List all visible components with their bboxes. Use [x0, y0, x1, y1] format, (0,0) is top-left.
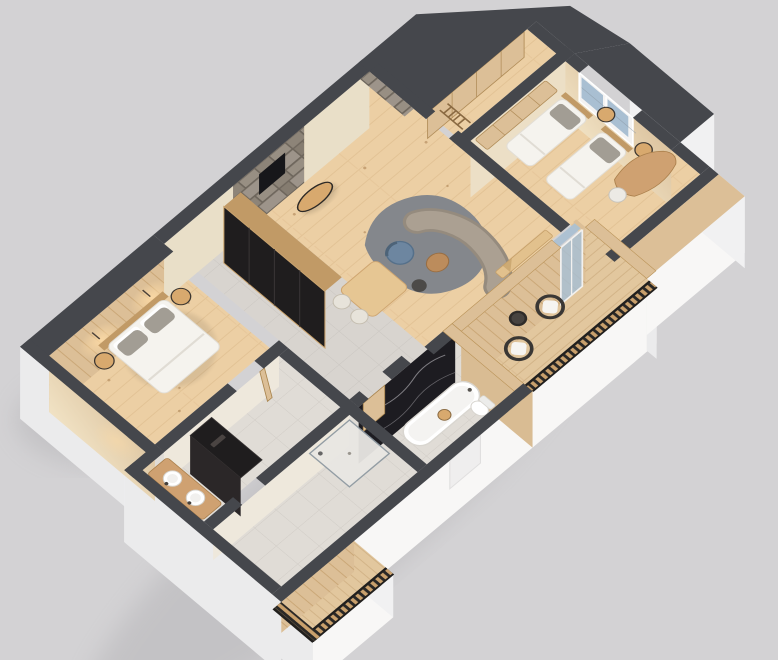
- apartment-3d-floorplan: [0, 0, 778, 660]
- floorplan-render-stage: [0, 0, 778, 660]
